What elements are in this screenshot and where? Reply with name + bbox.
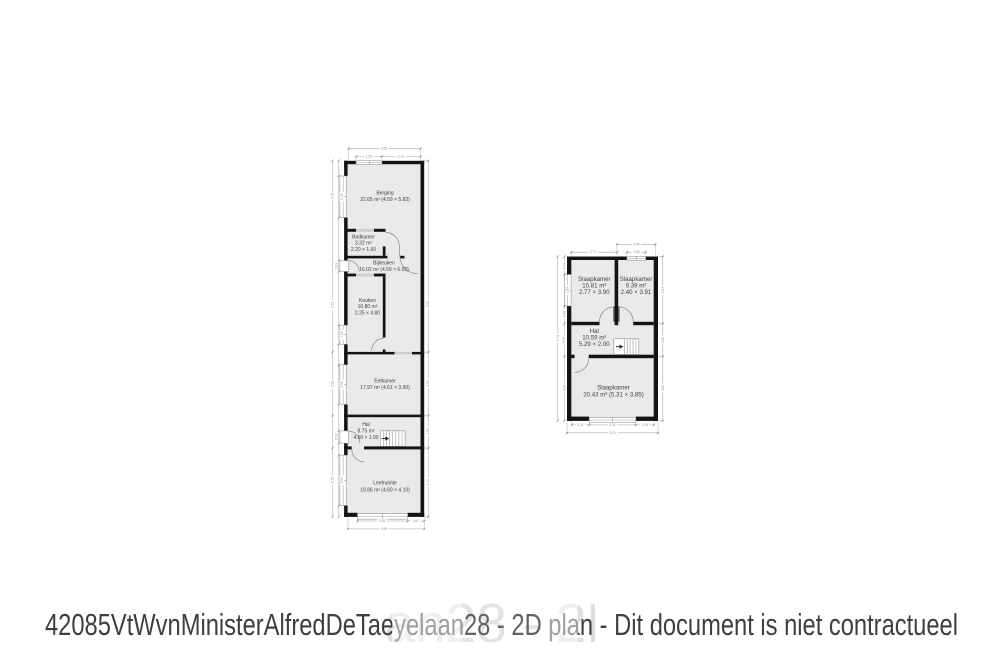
svg-text:1.90: 1.90 <box>426 428 430 435</box>
svg-text:5.75: 5.75 <box>556 335 560 342</box>
svg-text:8.75 m²: 8.75 m² <box>358 429 375 435</box>
svg-text:2.77 × 3.90: 2.77 × 3.90 <box>579 289 610 296</box>
svg-text:2.00: 2.00 <box>562 337 566 344</box>
svg-text:18.86 m² (4.60 × 4.10): 18.86 m² (4.60 × 4.10) <box>360 488 410 494</box>
svg-text:0.87: 0.87 <box>413 519 420 523</box>
svg-text:1.53: 1.53 <box>366 155 373 159</box>
svg-text:4.15: 4.15 <box>331 477 335 484</box>
svg-text:4.60 × 1.90: 4.60 × 1.90 <box>353 435 378 441</box>
svg-text:4.10: 4.10 <box>426 479 430 486</box>
svg-text:1.00: 1.00 <box>633 250 640 254</box>
svg-text:0.74: 0.74 <box>562 263 566 270</box>
svg-text:4.15: 4.15 <box>331 193 335 200</box>
svg-text:10.80 m²: 10.80 m² <box>358 304 378 310</box>
svg-text:1.89: 1.89 <box>566 287 570 294</box>
svg-text:1.05: 1.05 <box>642 423 649 427</box>
svg-text:5.31: 5.31 <box>610 431 617 435</box>
svg-text:2.40: 2.40 <box>633 242 640 246</box>
svg-text:2.25 × 4.80: 2.25 × 4.80 <box>355 310 380 316</box>
svg-text:3.23: 3.23 <box>331 302 335 309</box>
svg-text:Badkamer: Badkamer <box>352 234 375 240</box>
svg-text:2.38: 2.38 <box>340 381 344 388</box>
svg-text:3.32 m²: 3.32 m² <box>355 241 372 247</box>
svg-text:5.29 × 2.00: 5.29 × 2.00 <box>579 341 610 348</box>
svg-text:2.31: 2.31 <box>609 423 616 427</box>
svg-text:Keuken: Keuken <box>359 298 376 304</box>
svg-text:2.40 × 3.91: 2.40 × 3.91 <box>621 289 652 296</box>
svg-text:5.82: 5.82 <box>426 301 430 308</box>
svg-text:4.59: 4.59 <box>381 147 388 151</box>
svg-text:2.31: 2.31 <box>398 155 405 159</box>
svg-text:2.20 × 1.60: 2.20 × 1.60 <box>351 247 376 253</box>
svg-text:Leefruimte: Leefruimte <box>373 481 397 487</box>
svg-text:3.02: 3.02 <box>340 477 344 484</box>
svg-text:2.95: 2.95 <box>379 519 386 523</box>
svg-text:Berging: Berging <box>376 191 393 197</box>
svg-text:0.96: 0.96 <box>562 311 566 318</box>
svg-text:16.02 m² (4.59 × 6.02): 16.02 m² (4.59 × 6.02) <box>359 267 409 273</box>
svg-text:2.00: 2.00 <box>661 337 665 344</box>
svg-text:Slaapkamer: Slaapkamer <box>597 384 630 391</box>
svg-text:1.11: 1.11 <box>577 423 583 427</box>
svg-text:3.85: 3.85 <box>661 385 665 392</box>
svg-text:3.91: 3.91 <box>661 287 665 294</box>
svg-text:0.74: 0.74 <box>335 434 339 441</box>
svg-text:2.49: 2.49 <box>340 193 344 200</box>
svg-text:20.43 m² (5.31 × 3.85): 20.43 m² (5.31 × 3.85) <box>583 391 643 398</box>
svg-text:22.65 m² (4.59 × 5.82): 22.65 m² (4.59 × 5.82) <box>360 197 410 203</box>
svg-text:2.77: 2.77 <box>590 250 597 254</box>
svg-text:4.59: 4.59 <box>381 527 388 531</box>
svg-text:1.15: 1.15 <box>340 331 344 338</box>
svg-text:Bijkeuken: Bijkeuken <box>373 261 395 267</box>
svg-text:2.92: 2.92 <box>331 381 335 388</box>
svg-text:Hal: Hal <box>362 422 370 428</box>
svg-text:Eetkamer: Eetkamer <box>374 378 396 384</box>
svg-text:17.97 m² (4.61 × 3.90): 17.97 m² (4.61 × 3.90) <box>360 385 410 391</box>
svg-text:3.85: 3.85 <box>562 385 566 392</box>
svg-text:0.93: 0.93 <box>335 263 339 270</box>
svg-text:3.90: 3.90 <box>426 380 430 387</box>
